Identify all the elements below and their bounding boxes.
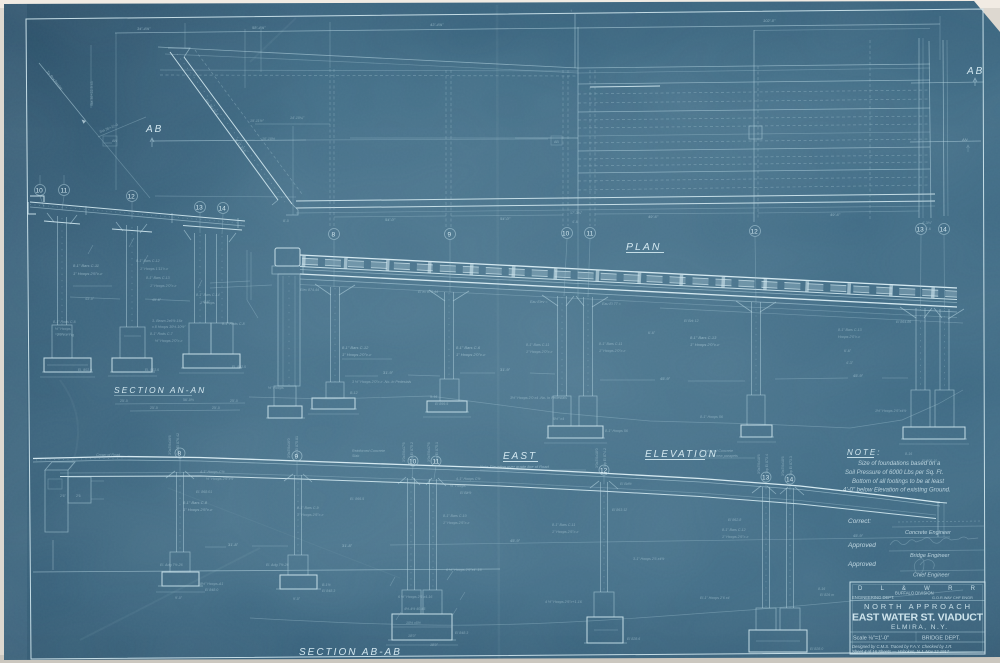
svg-text:25'-0: 25'-0 <box>150 406 158 410</box>
svg-text:El Bd½: El Bd½ <box>620 482 632 486</box>
svg-text:½" Hoops 2'0"c-c: ½" Hoops 2'0"c-c <box>155 339 183 343</box>
svg-text:AN: AN <box>112 139 117 143</box>
svg-text:El 862.8: El 862.8 <box>728 518 741 522</box>
svg-text:11: 11 <box>433 459 440 466</box>
svg-text:4-1" Hoops C½: 4-1" Hoops C½ <box>456 477 480 481</box>
svg-text:6 ½" Hoops 2'6"x4 -16: 6 ½" Hoops 2'6"x4 -16 <box>446 568 482 572</box>
svg-text:El 826 m: El 826 m <box>820 593 834 597</box>
svg-text:El. 802.0: El. 802.0 <box>145 368 159 372</box>
svg-text:31'-8": 31'-8" <box>342 543 353 548</box>
svg-text:El 848.0: El 848.0 <box>205 588 218 592</box>
svg-text:4'-6: 4'-6 <box>925 227 931 231</box>
svg-text:8-1" Bars C-11: 8-1" Bars C-11 <box>552 523 575 527</box>
svg-text:PLAN: PLAN <box>626 241 661 253</box>
svg-text:1½" Hoops 2'6"x4½: 1½" Hoops 2'6"x4½ <box>875 409 906 413</box>
svg-text:25'-0: 25'-0 <box>230 399 238 403</box>
svg-text:1" Hoops 2'0"c-c: 1" Hoops 2'0"c-c <box>599 349 626 353</box>
svg-text:Reinforced Concrete: Reinforced Concrete <box>700 449 733 453</box>
svg-text:Sheet 4 of 16 Sheets — Hoboken: Sheet 4 of 16 Sheets — Hoboken, N.J. Nov… <box>852 649 950 654</box>
svg-text:Hoops 2'0"c-c: Hoops 2'0"c-c <box>838 335 860 339</box>
svg-text:1" Hoops 2'6"c-c: 1" Hoops 2'6"c-c <box>73 271 102 276</box>
svg-text:6'-6": 6'-6" <box>648 331 656 335</box>
svg-text:14'-10¼": 14'-10¼" <box>290 116 305 120</box>
svg-text:B-1½: B-1½ <box>322 583 331 587</box>
svg-text:4'-6": 4'-6" <box>203 300 211 304</box>
svg-text:13: 13 <box>762 475 770 482</box>
svg-text:Approved: Approved <box>847 542 876 549</box>
svg-text:Bridge Engineer: Bridge Engineer <box>910 553 951 559</box>
svg-text:56'-0½: 56'-0½ <box>183 398 194 402</box>
svg-text:El-1" Hoops 2'6 x4: El-1" Hoops 2'6 x4 <box>700 596 730 600</box>
svg-text:EAST: EAST <box>503 451 537 462</box>
svg-text:58'-4⅞": 58'-4⅞" <box>252 25 266 30</box>
svg-text:2'0"c-c Ftg: 2'0"c-c Ftg <box>56 333 74 337</box>
svg-text:8-1" Hoops 56: 8-1" Hoops 56 <box>700 415 723 419</box>
svg-text:18'0": 18'0" <box>430 643 439 647</box>
svg-text:Eau El 77 =: Eau El 77 = <box>602 302 621 306</box>
svg-text:3'0x3'0x16'0: 3'0x3'0x16'0 <box>287 438 291 458</box>
svg-text:1" Hoops 2'0"c-c: 1" Hoops 2'0"c-c <box>456 352 485 357</box>
svg-text:12: 12 <box>128 194 136 201</box>
svg-text:8-1" Hoops 56: 8-1" Hoops 56 <box>605 429 628 433</box>
svg-text:Elev 874.44: Elev 874.44 <box>300 288 319 292</box>
svg-text:El ev 871.44: El ev 871.44 <box>418 290 438 294</box>
svg-text:8-1" Bars C-11: 8-1" Bars C-11 <box>73 263 99 268</box>
svg-text:10½ x5½: 10½ x5½ <box>406 621 421 625</box>
svg-text:8: 8 <box>332 232 336 239</box>
svg-text:4 ½" Hoops 2'6"c+1-16: 4 ½" Hoops 2'6"c+1-16 <box>545 600 582 604</box>
svg-text:49'-6": 49'-6" <box>830 212 841 217</box>
svg-text:8½" Hoops-A1: 8½" Hoops-A1 <box>200 582 223 586</box>
svg-text:Scale ⅛"=1'-0": Scale ⅛"=1'-0" <box>853 636 889 642</box>
svg-text:Reinforced Concrete: Reinforced Concrete <box>352 449 385 453</box>
svg-text:G.O.R.WAY CHF ENGR: G.O.R.WAY CHF ENGR <box>932 596 973 600</box>
svg-text:EAST WATER ST. VIADUCT: EAST WATER ST. VIADUCT <box>852 612 984 624</box>
svg-text:14: 14 <box>940 227 948 234</box>
svg-text:1" Hoops 2'0"c-c: 1" Hoops 2'0"c-c <box>342 352 371 357</box>
svg-text:Correct:: Correct: <box>848 518 871 525</box>
svg-text:3'0x3'0x18'6: 3'0x3'0x18'6 <box>757 454 761 474</box>
svg-text:8-1" Rods C-6: 8-1" Rods C-6 <box>53 320 76 324</box>
svg-text:9: 9 <box>448 232 452 239</box>
svg-text:8-16: 8-16 <box>905 452 912 456</box>
svg-text:4'-3": 4'-3" <box>846 361 854 365</box>
svg-text:3'0x3'0x18'6: 3'0x3'0x18'6 <box>781 456 785 476</box>
svg-text:AB: AB <box>554 140 559 144</box>
svg-text:1" Hoops 2'6"c-c: 1" Hoops 2'6"c-c <box>443 521 470 525</box>
svg-text:14: 14 <box>219 206 227 213</box>
svg-text:AB: AB <box>145 124 163 135</box>
svg-text:Bottom of all footings to be a: Bottom of all footings to be at least <box>852 479 944 485</box>
svg-text:Top El 873.4: Top El 873.4 <box>765 454 769 474</box>
svg-text:SECTION AB-AB: SECTION AB-AB <box>299 647 402 658</box>
svg-text:45'-9": 45'-9" <box>853 373 864 378</box>
svg-text:½" Hoops: ½" Hoops <box>268 386 284 390</box>
svg-text:3½" Hoops 2'0 x4 -No- In Pedes: 3½" Hoops 2'0 x4 -No- In Pedestals <box>510 396 567 400</box>
svg-text:El 864.86: El 864.86 <box>896 320 911 324</box>
svg-text:B-12: B-12 <box>350 391 358 395</box>
svg-text:8: 8 <box>178 451 182 458</box>
svg-text:14: 14 <box>786 477 794 484</box>
svg-text:El 828.0: El 828.0 <box>810 647 823 651</box>
svg-text:3'0x3'0x17'6: 3'0x3'0x17'6 <box>402 442 406 462</box>
svg-text:1" Hoops 1'11"c-c: 1" Hoops 1'11"c-c <box>140 267 168 271</box>
svg-text:El. 802.0: El. 802.0 <box>232 365 246 369</box>
svg-text:9-16: 9-16 <box>430 395 437 399</box>
svg-text:El Brk 12: El Brk 12 <box>684 319 699 323</box>
svg-text:4½-4½ 40-45: 4½-4½ 40-45 <box>404 607 425 611</box>
svg-text:31'-9": 31'-9" <box>500 367 511 372</box>
svg-text:54'-0": 54'-0" <box>385 217 396 222</box>
svg-text:45'-9": 45'-9" <box>853 533 864 538</box>
svg-text:1" Hoops 2'0"c-c: 1" Hoops 2'0"c-c <box>690 342 719 347</box>
svg-text:5½" x4: 5½" x4 <box>553 417 564 421</box>
svg-text:8-1" Bars C-13: 8-1" Bars C-13 <box>838 328 862 332</box>
svg-text:25'-0: 25'-0 <box>212 406 220 410</box>
svg-text:Soil Pressure of 6000 Lbs per: Soil Pressure of 6000 Lbs per Sq. Ft. <box>845 470 943 476</box>
svg-text:BRIDGE DEPT.: BRIDGE DEPT. <box>922 636 961 642</box>
svg-text:↑: ↑ <box>570 8 572 13</box>
svg-text:9: 9 <box>295 454 299 461</box>
svg-text:SECTION AN-AN: SECTION AN-AN <box>114 385 206 395</box>
svg-text:11: 11 <box>587 231 594 238</box>
svg-text:4'-6: 4'-6 <box>572 220 578 224</box>
svg-text:8-16: 8-16 <box>818 587 825 591</box>
svg-text:31'-9": 31'-9" <box>383 370 394 375</box>
svg-text:17'-3¼": 17'-3¼" <box>570 211 583 215</box>
svg-text:13: 13 <box>196 205 204 212</box>
svg-text:3 ½" Hoops 2'0"c-c -No- In Ped: 3 ½" Hoops 2'0"c-c -No- In Pedestals <box>352 380 411 384</box>
svg-text:6 ½" Hoops 2'6 x4-16: 6 ½" Hoops 2'6 x4-16 <box>398 595 432 599</box>
svg-text:El 848.3: El 848.3 <box>455 631 468 635</box>
svg-text:2'6": 2'6" <box>60 494 67 498</box>
svg-text:El 828.6: El 828.6 <box>627 637 640 641</box>
svg-text:45'-9": 45'-9" <box>660 376 671 381</box>
svg-text:Slab over new parapets: Slab over new parapets <box>700 454 738 458</box>
svg-text:3- Beam 2x6½-16x: 3- Beam 2x6½-16x <box>152 319 183 323</box>
svg-text:9'-0": 9'-0" <box>293 597 301 601</box>
svg-text:8-1" Bars C-6: 8-1" Bars C-6 <box>456 345 481 350</box>
svg-text:19'-11½": 19'-11½" <box>250 119 265 123</box>
svg-text:8-1" Bars C-12: 8-1" Bars C-12 <box>136 259 160 263</box>
svg-text:3'0x3'0x17'6: 3'0x3'0x17'6 <box>427 442 431 462</box>
svg-text:8-1" Bars C-9: 8-1" Bars C-9 <box>297 506 319 510</box>
svg-text:34'-4⅞": 34'-4⅞" <box>137 26 151 31</box>
svg-text:½" Hoops: ½" Hoops <box>55 327 71 331</box>
svg-text:8-1" Rods C-7: 8-1" Rods C-7 <box>150 332 174 336</box>
svg-text:El. 866.5: El. 866.5 <box>350 497 364 501</box>
svg-text:½" Hoops 2'6"x½: ½" Hoops 2'6"x½ <box>206 477 233 481</box>
svg-text:3'0x3'0x16'6: 3'0x3'0x16'6 <box>168 435 172 455</box>
svg-text:1" Hoops 2'6"c-c: 1" Hoops 2'6"c-c <box>183 507 212 512</box>
svg-text:10: 10 <box>409 459 417 466</box>
svg-text:Size of foundations based on a: Size of foundations based on a <box>858 461 941 467</box>
svg-text:4-1" Hoops-C½: 4-1" Hoops-C½ <box>200 470 225 474</box>
svg-text:8-1" Rods C-8: 8-1" Rods C-8 <box>222 322 245 326</box>
svg-text:AB: AB <box>966 66 984 77</box>
svg-text:1" Hoops 2'0"c-c: 1" Hoops 2'0"c-c <box>526 350 553 354</box>
svg-text:102'-0": 102'-0" <box>763 18 776 23</box>
svg-text:1" Hoops 2'0"c-c: 1" Hoops 2'0"c-c <box>150 284 177 288</box>
svg-text:Slab: Slab <box>352 454 359 458</box>
svg-text:El 863.12: El 863.12 <box>612 508 627 512</box>
svg-text:Crown of Road: Crown of Road <box>96 453 121 457</box>
svg-text:8-1" Bars C-12: 8-1" Bars C-12 <box>722 528 746 532</box>
svg-text:El 899.5: El 899.5 <box>435 402 448 406</box>
svg-text:25'-0: 25'-0 <box>120 399 128 403</box>
svg-text:Sta 36+22-9 43: Sta 36+22-9 43 <box>90 81 94 106</box>
svg-text:31'-8": 31'-8" <box>228 542 239 547</box>
svg-text:El Bk½: El Bk½ <box>460 491 471 495</box>
svg-text:45'-9": 45'-9" <box>510 538 521 543</box>
svg-text:Approved: Approved <box>847 561 876 568</box>
svg-text:Eau Elev =: Eau Elev = <box>530 300 547 304</box>
svg-text:8'-0: 8'-0 <box>283 219 289 223</box>
svg-text:El. 868.01: El. 868.01 <box>196 490 212 494</box>
svg-text:Concrete Engineer: Concrete Engineer <box>905 530 952 536</box>
svg-text:x 8 Hoops 30½-10½": x 8 Hoops 30½-10½" <box>151 325 186 329</box>
svg-text:2'6: 2'6 <box>76 494 81 498</box>
svg-text:3'0x3'0x18'0: 3'0x3'0x18'0 <box>595 448 599 468</box>
svg-text:8-1" Bars C-12: 8-1" Bars C-12 <box>342 345 369 350</box>
svg-text:1" Hoops 2'6"c-c: 1" Hoops 2'6"c-c <box>297 513 324 517</box>
svg-text:8-1" Bars C-11: 8-1" Bars C-11 <box>599 342 622 346</box>
svg-text:Chief Engineer: Chief Engineer <box>913 573 951 579</box>
svg-text:10: 10 <box>562 231 570 238</box>
svg-text:12: 12 <box>751 229 759 236</box>
svg-text:El. 802.0: El. 802.0 <box>78 368 92 372</box>
svg-text:1" Hoops 2'6"c-c: 1" Hoops 2'6"c-c <box>722 535 749 539</box>
svg-text:NOTE:: NOTE: <box>847 448 881 457</box>
svg-text:El. Adg.7½-26: El. Adg.7½-26 <box>160 563 183 567</box>
svg-text:8-1" Bars C-11: 8-1" Bars C-11 <box>526 343 549 347</box>
svg-text:9'-0": 9'-0" <box>175 596 183 600</box>
svg-text:11: 11 <box>61 188 68 195</box>
svg-text:54'-0": 54'-0" <box>500 216 511 221</box>
svg-text:8-1" Bars C-13: 8-1" Bars C-13 <box>146 276 170 280</box>
svg-text:8-1" Bars C-14: 8-1" Bars C-14 <box>196 293 220 297</box>
svg-text:8-1" Bars C-10: 8-1" Bars C-10 <box>443 514 467 518</box>
svg-text:13: 13 <box>917 227 925 234</box>
svg-text:El. Adg.7½-26: El. Adg.7½-26 <box>266 563 289 567</box>
svg-text:8-1" Bars C-13: 8-1" Bars C-13 <box>690 335 717 340</box>
svg-text:6'-6": 6'-6" <box>844 349 852 353</box>
svg-text:El 848.3: El 848.3 <box>322 589 335 593</box>
svg-text:ELMIRA, N.Y.: ELMIRA, N.Y. <box>891 624 949 631</box>
svg-text:3-1" Hoops 2'6 x4½: 3-1" Hoops 2'6 x4½ <box>633 557 664 561</box>
svg-text:49'-6": 49'-6" <box>648 214 659 219</box>
svg-text:½" Hoops: ½" Hoops <box>450 484 466 488</box>
svg-text:10: 10 <box>36 188 44 195</box>
svg-text:12: 12 <box>600 468 608 475</box>
svg-text:43'-4⅞": 43'-4⅞" <box>430 22 444 27</box>
svg-text:1" Hoops 2'6"c-c: 1" Hoops 2'6"c-c <box>552 530 579 534</box>
svg-text:Top El 873.3: Top El 873.3 <box>789 456 793 476</box>
svg-text:18'0": 18'0" <box>408 634 417 638</box>
